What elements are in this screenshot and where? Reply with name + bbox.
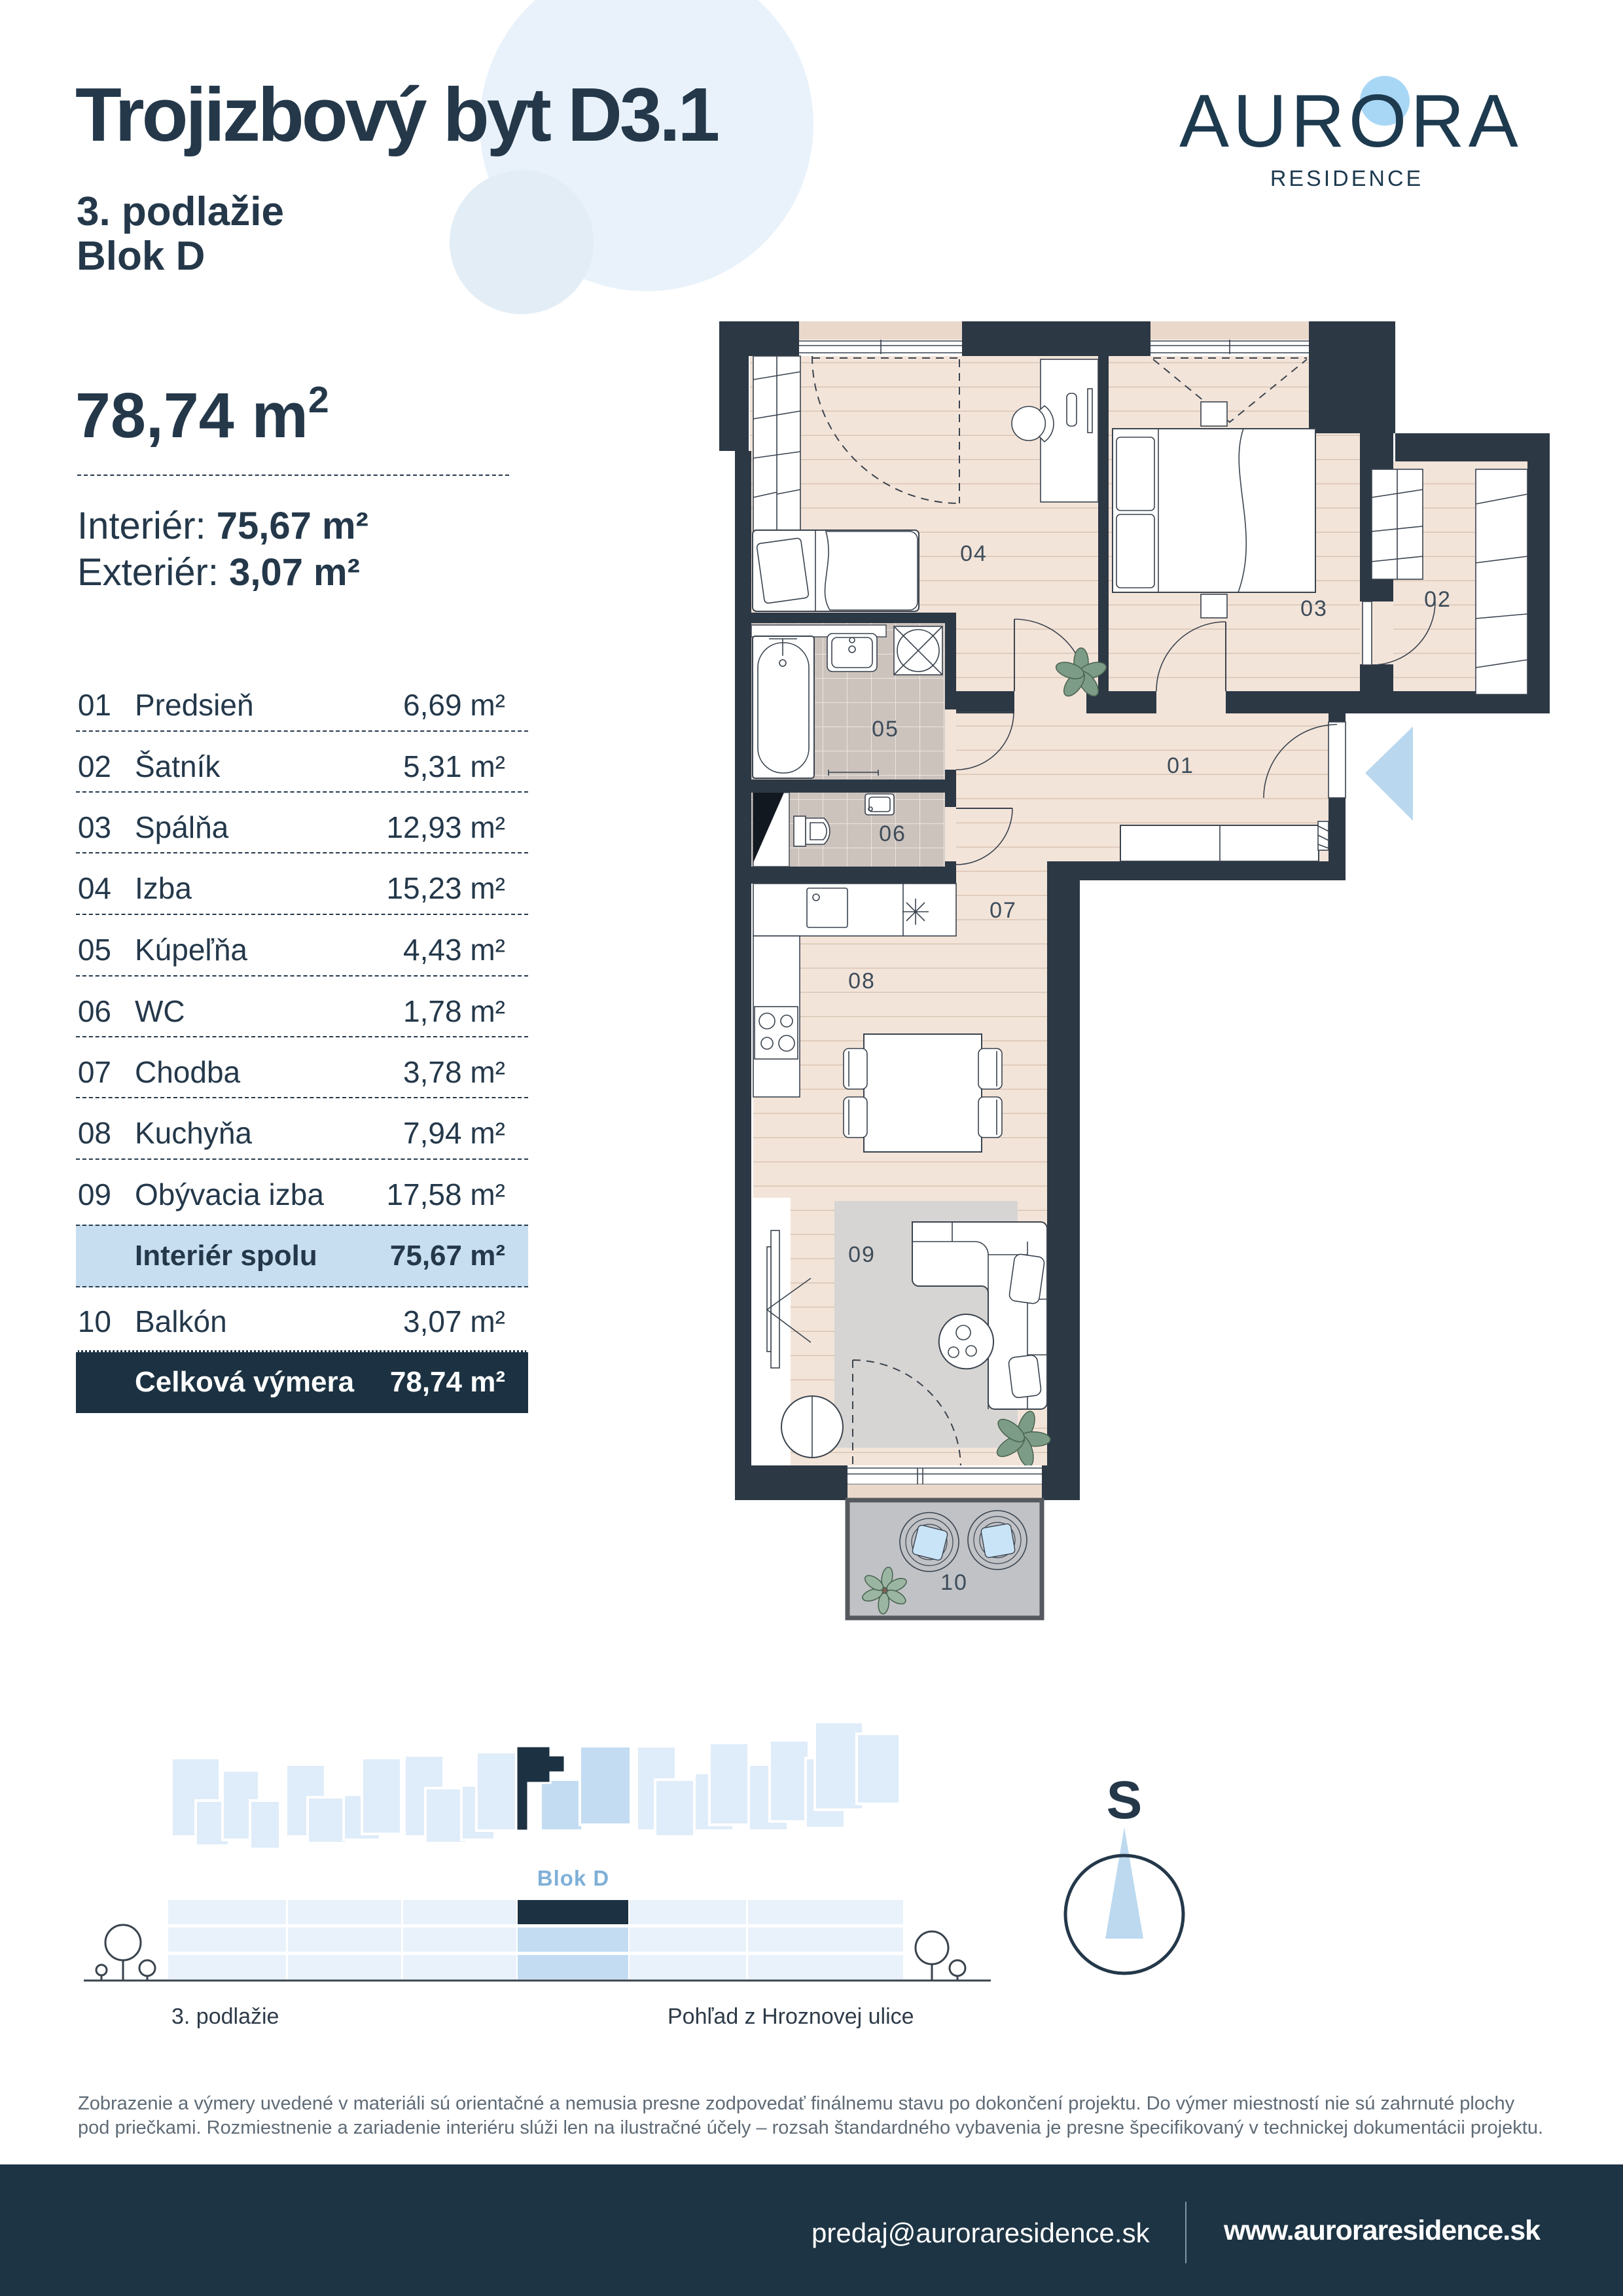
svg-text:Blok D: Blok D <box>537 1866 610 1890</box>
svg-text:RESIDENCE: RESIDENCE <box>1270 166 1423 191</box>
svg-text:01: 01 <box>1167 753 1194 778</box>
svg-text:09: 09 <box>848 1242 876 1267</box>
svg-text:06: 06 <box>879 821 906 846</box>
svg-text:03: 03 <box>1300 596 1328 621</box>
svg-text:3. podlažie: 3. podlažie <box>171 2004 279 2029</box>
svg-text:S: S <box>1107 1770 1143 1830</box>
svg-text:07: 07 <box>990 898 1017 923</box>
svg-text:05: 05 <box>872 717 899 742</box>
svg-text:02: 02 <box>1424 587 1452 612</box>
svg-text:10: 10 <box>940 1570 968 1595</box>
svg-text:08: 08 <box>848 969 876 994</box>
svg-text:04: 04 <box>960 541 988 566</box>
svg-text:AURORA: AURORA <box>1179 80 1522 163</box>
svg-text:Pohľad z Hroznovej ulice: Pohľad z Hroznovej ulice <box>668 2004 914 2029</box>
